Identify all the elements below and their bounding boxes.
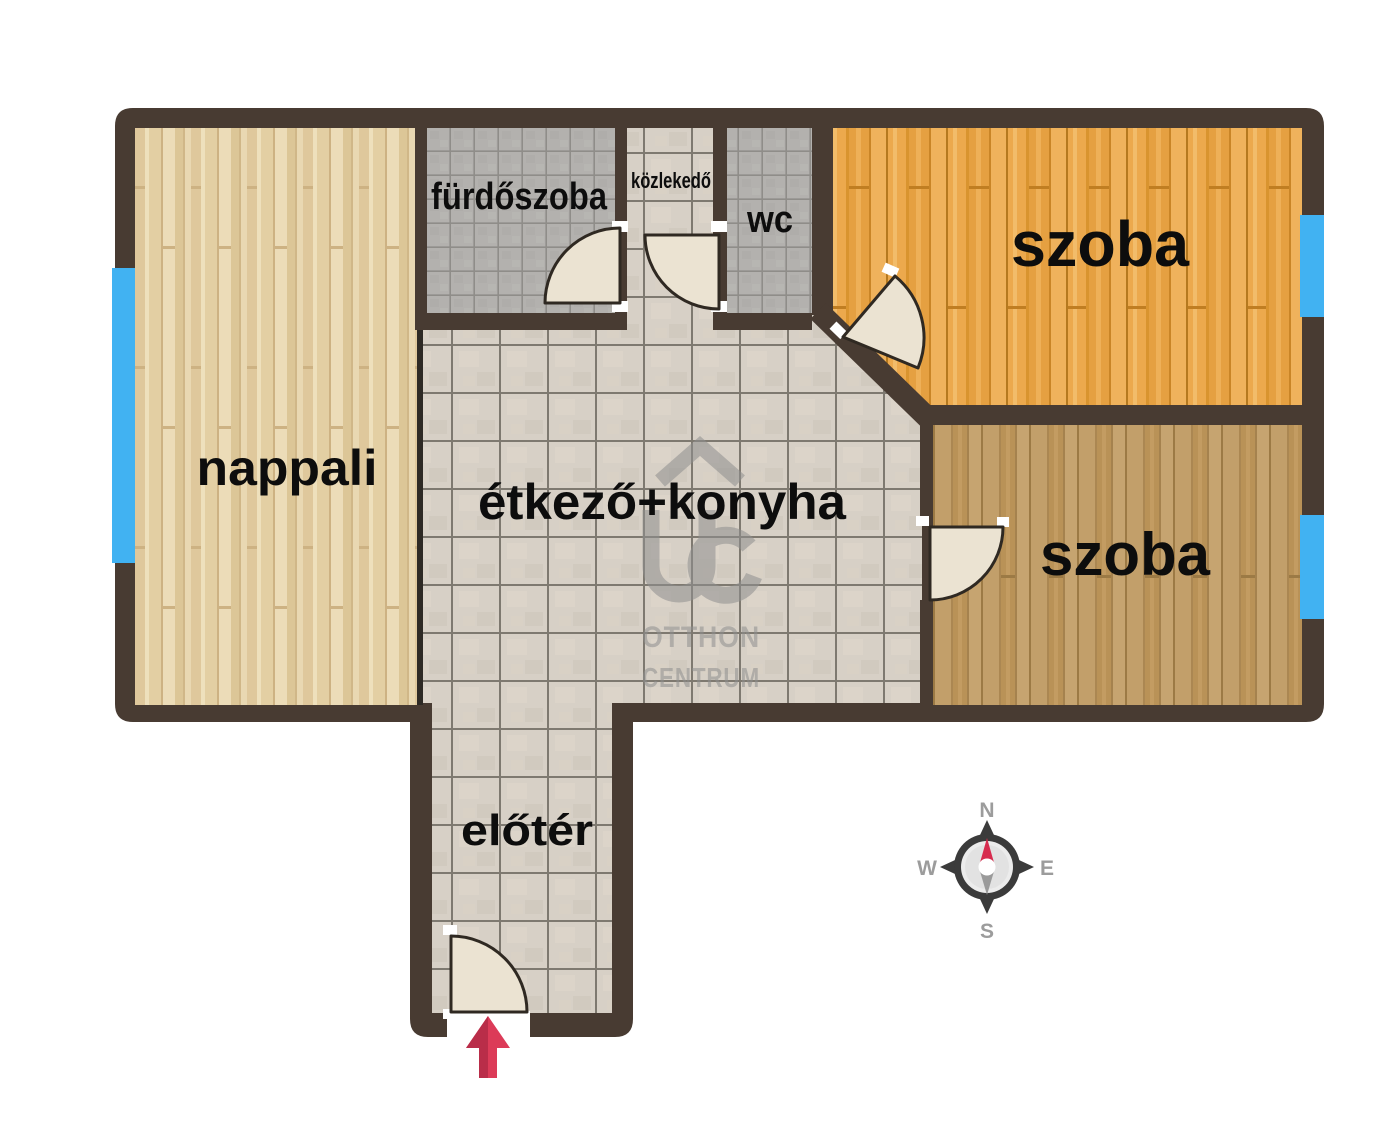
compass-label-n: N [979, 799, 994, 822]
room-label-wc: wc [746, 199, 793, 241]
window-marker [112, 268, 135, 563]
watermark-line2: CENTRUM [642, 662, 760, 693]
room-label-kozlekedo: közlekedő [631, 168, 711, 193]
watermark-line1: OTTHON [642, 621, 760, 654]
compass-label-e: E [1040, 857, 1054, 880]
room-label-etkezo-konyha: étkező+konyha [478, 474, 847, 530]
room-label-nappali: nappali [197, 440, 378, 496]
window-marker [1300, 215, 1324, 317]
compass-label-w: W [917, 857, 937, 880]
floor-plan-canvas: OTTHON CENTRUM nappali fürdőszoba közlek… [0, 0, 1400, 1140]
compass-rose-icon: N E S W [917, 799, 1054, 943]
window-marker [1300, 515, 1324, 619]
room-label-szoba-felso: szoba [1011, 208, 1189, 280]
floor-plan-page: OTTHON CENTRUM nappali fürdőszoba közlek… [0, 0, 1400, 1140]
room-nappali-floor [135, 128, 417, 705]
compass-label-s: S [980, 920, 994, 943]
room-label-furdoszoba: fürdőszoba [431, 176, 608, 218]
room-label-eloter: előtér [461, 806, 593, 855]
room-label-szoba-also: szoba [1040, 521, 1211, 588]
